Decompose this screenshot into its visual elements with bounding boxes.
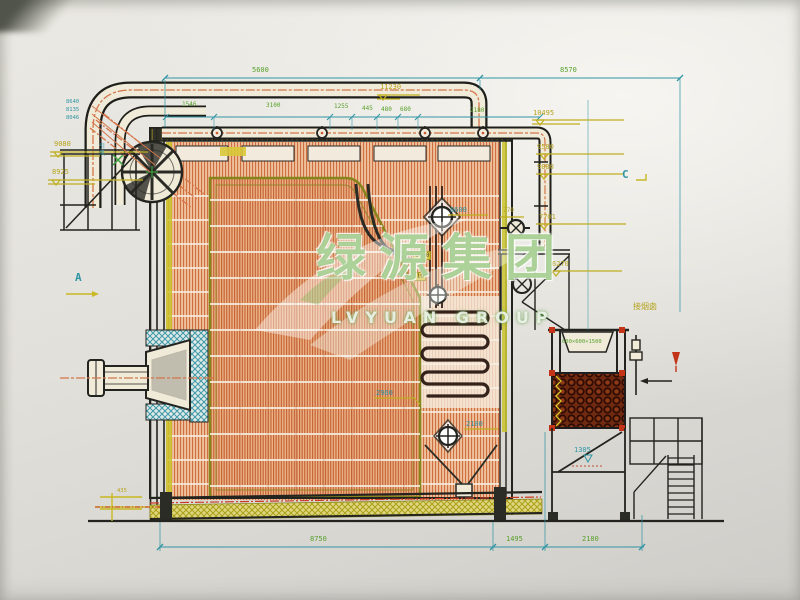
stack-8135: 8135 [66, 107, 79, 113]
flue-note: 接烟囱 [633, 303, 657, 311]
stair-structure [630, 418, 702, 519]
dim-row-1: 1546 [182, 101, 196, 108]
dim-row-4: 445 [362, 105, 373, 112]
dim-bottom-main: 8750 [310, 535, 327, 543]
section-letter-c: C [622, 171, 629, 179]
dim-top-left: 5600 [252, 66, 269, 74]
drum-note: 引风 [99, 143, 107, 157]
box-label-1620: 1620 [413, 251, 431, 260]
elevation-6270: 6270 [552, 260, 569, 268]
dim-row-3: 1255 [334, 103, 348, 110]
stack-8046: 8046 [66, 115, 79, 121]
dim-row-7: 2180 [470, 107, 484, 114]
mark-2100: 2100 [466, 420, 483, 428]
elevation-9580: 9580 [537, 143, 554, 151]
elevation-11230: 11230 [380, 83, 401, 91]
dim-row-5: 480 [381, 106, 392, 113]
mark-2960: 2960 [376, 389, 393, 397]
box-label-610: 610 [411, 272, 426, 281]
section-letter-a: A [75, 274, 82, 282]
elevation-770: 770 [503, 207, 514, 214]
flue-fittings [630, 335, 680, 395]
burner-assembly [60, 330, 215, 422]
mark-8600: 8600 [450, 206, 467, 214]
elevation-left-8925: 8925 [52, 168, 69, 176]
economizer-unit [548, 100, 630, 520]
dim-row-6: 680 [400, 106, 411, 113]
boiler-engineering-drawing-photo: 5600 8570 1546 3100 1255 445 480 680 218… [0, 0, 800, 600]
stack-8640: 8640 [66, 99, 79, 105]
dim-bottom-right: 2100 [582, 535, 599, 543]
section-a-arrow [66, 291, 99, 297]
elevation-7701: 7701 [539, 213, 556, 221]
hopper-spec: 600×600×1500 [562, 339, 602, 345]
section-c-mark [636, 174, 646, 180]
dim-top-right: 8570 [560, 66, 577, 74]
elevation-9080: 9080 [537, 163, 554, 171]
mark-1305: 1305 [574, 446, 591, 454]
elevation-10495: 10495 [533, 109, 554, 117]
mark-435: 435 [117, 488, 127, 494]
elevation-left-9080: 9080 [54, 140, 71, 148]
dim-row-2: 3100 [266, 102, 280, 109]
dim-bottom-mid: 1495 [506, 535, 523, 543]
